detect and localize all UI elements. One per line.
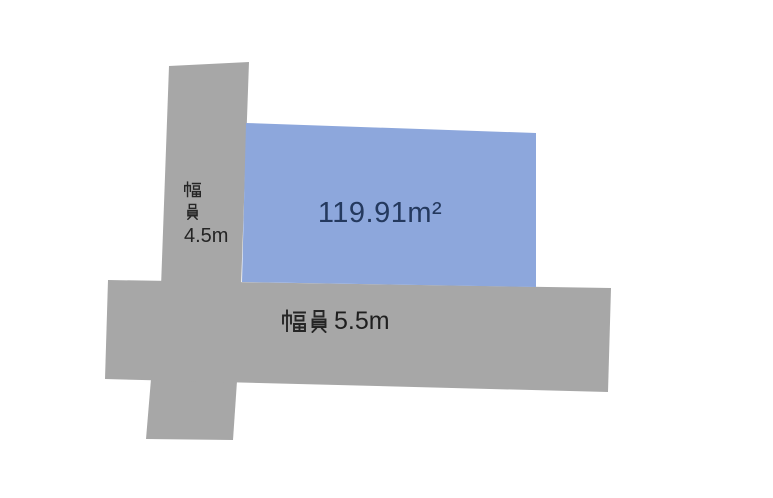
- road-vertical-lower-shape: [146, 379, 237, 440]
- road-horizontal-shape: [105, 280, 611, 392]
- land-parcel-shape: [242, 123, 536, 287]
- land-plot-diagram: 119.91m² 4.5m 5.5m: [0, 0, 773, 498]
- plot-roads-canvas: [0, 0, 773, 498]
- road-vertical-upper-shape: [161, 62, 249, 287]
